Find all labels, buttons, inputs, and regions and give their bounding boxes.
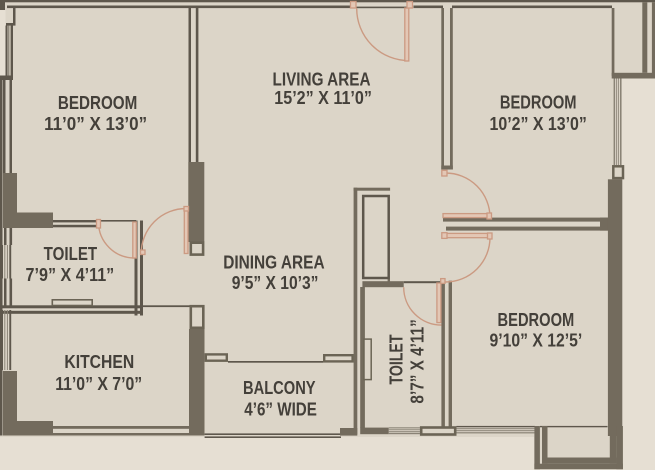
svg-text:BEDROOM: BEDROOM — [498, 309, 575, 330]
svg-text:TOILET: TOILET — [386, 334, 407, 385]
svg-text:TOILET: TOILET — [44, 243, 98, 264]
svg-text:15’2” X 11’0”: 15’2” X 11’0” — [274, 87, 372, 108]
svg-text:4’6” WIDE: 4’6” WIDE — [244, 398, 317, 419]
svg-text:11’0” X 13’0”: 11’0” X 13’0” — [44, 113, 147, 134]
svg-text:BEDROOM: BEDROOM — [58, 92, 137, 113]
svg-text:10’2” X 13’0”: 10’2” X 13’0” — [490, 113, 587, 134]
svg-text:9’5” X 10’3”: 9’5” X 10’3” — [232, 272, 319, 293]
svg-text:DINING AREA: DINING AREA — [223, 251, 324, 272]
svg-text:7’9” X 4’11”: 7’9” X 4’11” — [26, 264, 115, 285]
svg-text:9’10” X 12’5’: 9’10” X 12’5’ — [490, 330, 583, 351]
svg-text:8’7” X 4’11”: 8’7” X 4’11” — [407, 319, 428, 403]
svg-text:KITCHEN: KITCHEN — [64, 351, 134, 372]
svg-text:BALCONY: BALCONY — [243, 377, 316, 398]
svg-text:11’0” X 7’0”: 11’0” X 7’0” — [55, 373, 142, 394]
svg-text:BEDROOM: BEDROOM — [500, 92, 577, 113]
